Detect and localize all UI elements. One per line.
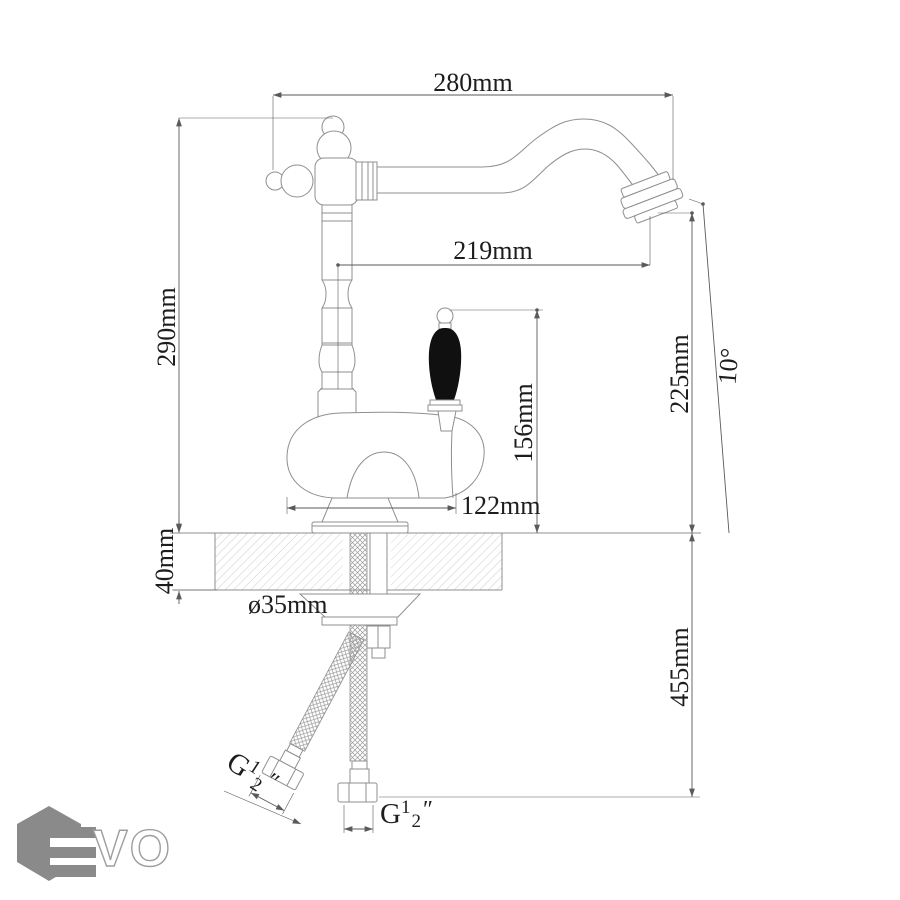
- faucet-body-drawing: [266, 116, 686, 533]
- evo-logo: VO: [17, 806, 172, 881]
- label-body-length: 122mm: [461, 491, 540, 520]
- column: [318, 204, 356, 418]
- label-total-height: 290mm: [152, 287, 181, 366]
- label-hole-diameter: ø35mm: [248, 590, 327, 619]
- left-large-ball: [281, 165, 313, 197]
- mixer-body: [287, 412, 484, 498]
- hose-ring: [350, 769, 369, 783]
- label-spout-reach: 280mm: [433, 68, 512, 97]
- label-handle-height: 156mm: [509, 383, 538, 462]
- handle-ball: [437, 308, 453, 324]
- faucet-technical-drawing: 280mm 219mm 290mm 225mm 10° 156mm 122mm …: [0, 0, 900, 900]
- logo-letters: VO: [93, 820, 172, 878]
- handle-grip: [429, 328, 461, 400]
- handle-collar-lower: [428, 405, 462, 411]
- spout-tube: [377, 119, 662, 193]
- label-thread-vertical: G12″: [380, 797, 433, 832]
- logo-e-bar-top: [50, 827, 96, 838]
- spout-collar: [356, 162, 377, 200]
- cross-head: [315, 158, 358, 205]
- label-thread-angled: G12″: [220, 745, 283, 803]
- countertop: [173, 533, 502, 590]
- logo-e-bar-bottom: [50, 865, 96, 877]
- label-spout-projection: 219mm: [453, 236, 532, 265]
- base-flange: [312, 522, 408, 533]
- logo-e-bar-middle: [50, 847, 96, 858]
- label-hose-drop: 455mm: [665, 627, 694, 706]
- washer-plate: [322, 617, 397, 625]
- aerator-nozzle: [615, 169, 687, 227]
- handle-collar: [430, 400, 460, 405]
- drawing-canvas: 280mm 219mm 290mm 225mm 10° 156mm 122mm …: [0, 0, 900, 900]
- stud-nut-tip: [372, 648, 385, 658]
- label-tilt-angle: 10°: [713, 347, 745, 386]
- hose-neck: [352, 761, 367, 769]
- label-deck-thickness: 40mm: [150, 528, 179, 594]
- vertical-hose-nut: [338, 783, 377, 802]
- base-pedestal: [322, 498, 398, 522]
- label-outlet-height: 225mm: [665, 334, 694, 413]
